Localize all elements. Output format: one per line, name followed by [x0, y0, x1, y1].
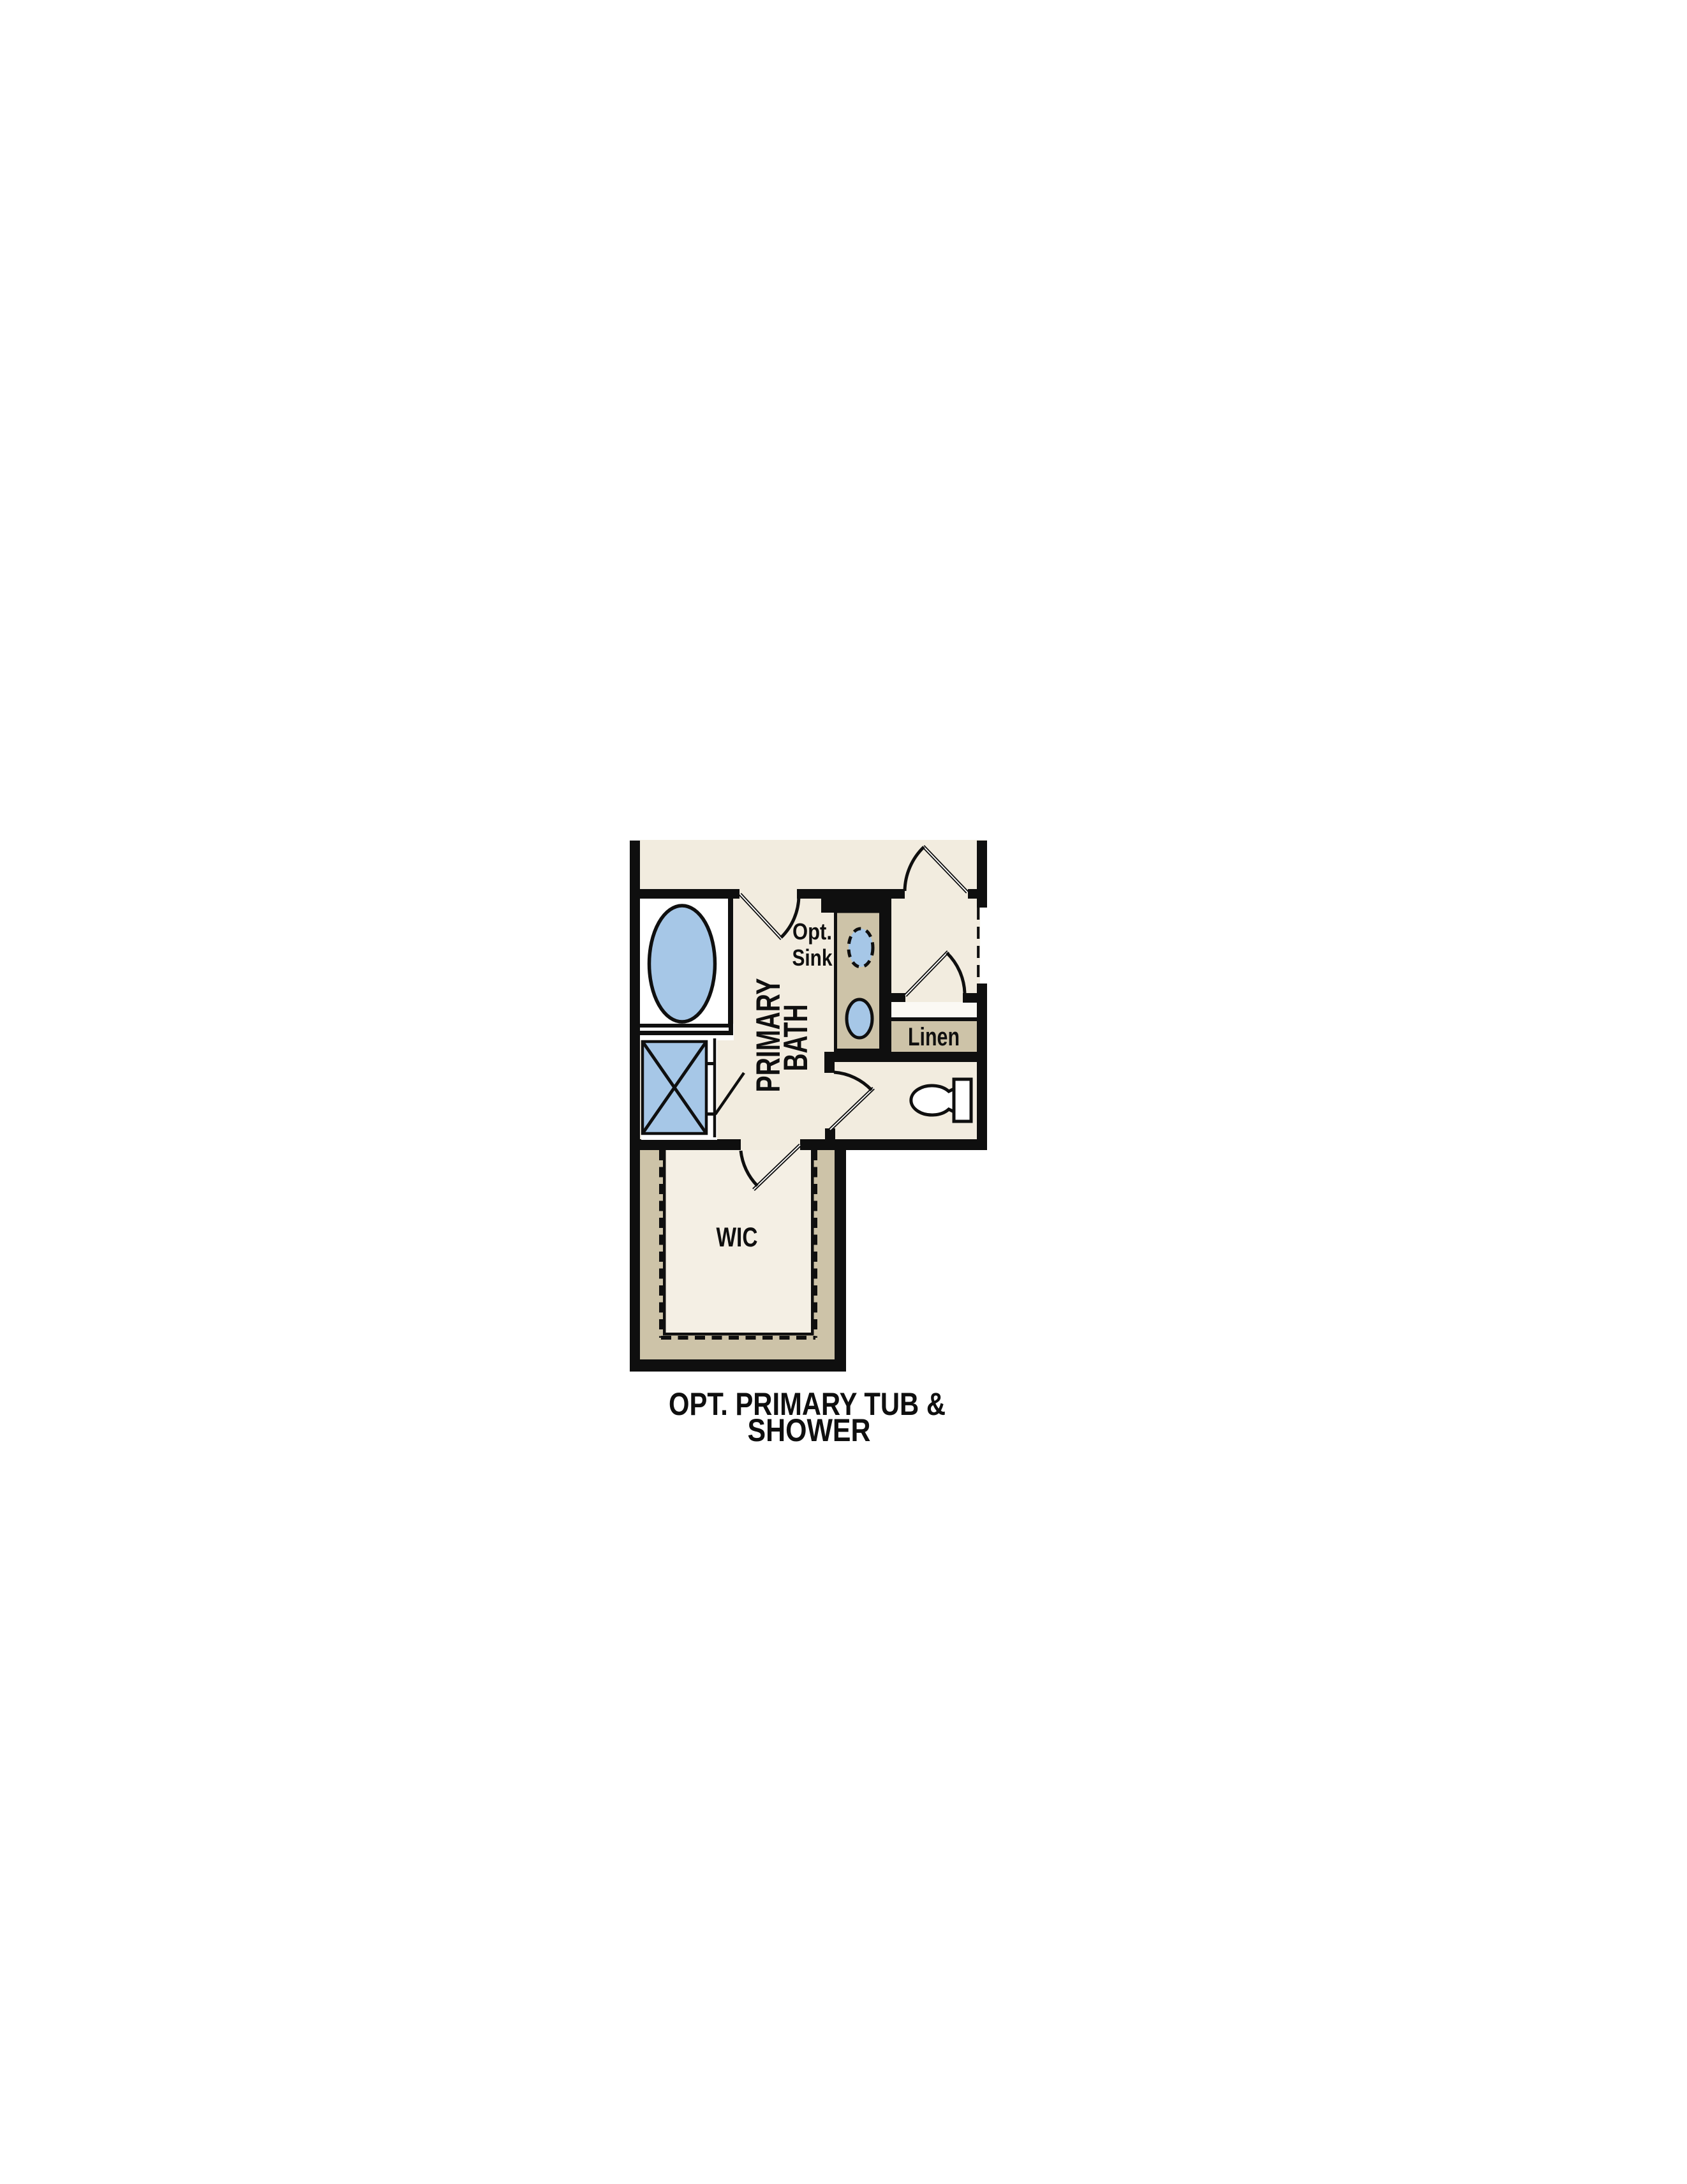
- svg-text:Sink: Sink: [792, 945, 833, 971]
- svg-text:Opt.: Opt.: [792, 918, 832, 945]
- svg-text:SHOWER: SHOWER: [748, 1412, 871, 1448]
- svg-text:WIC: WIC: [717, 1222, 758, 1253]
- svg-text:BATH: BATH: [777, 1005, 815, 1072]
- svg-text:Linen: Linen: [908, 1023, 960, 1051]
